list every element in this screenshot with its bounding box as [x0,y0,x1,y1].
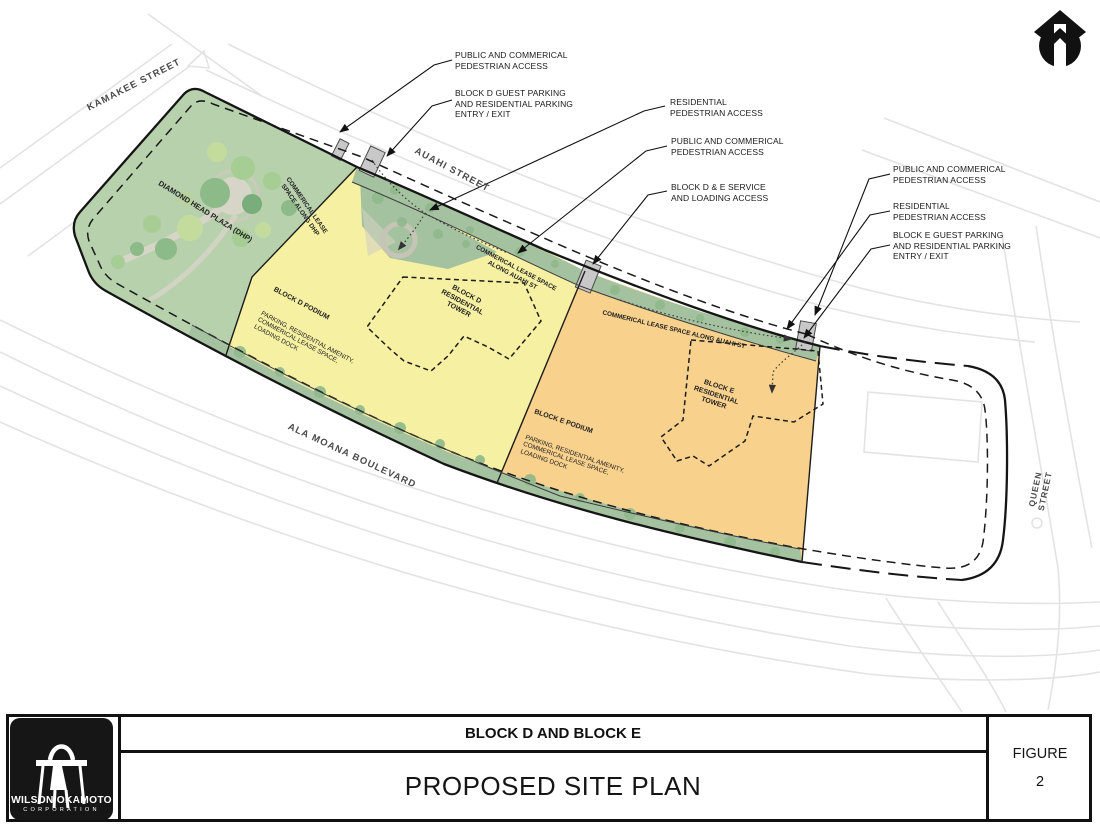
callout-residential-access-1: RESIDENTIAL PEDESTRIAN ACCESS [670,97,763,118]
callout-public-commercial-access-3: PUBLIC AND COMMERICAL PEDESTRIAN ACCESS [893,164,1006,185]
drawing-title: PROPOSED SITE PLAN [121,752,985,820]
logo-division-name: CORPORATION [10,807,113,813]
future-parcel-endcap [962,366,1007,580]
callout-service-loading-access: BLOCK D & E SERVICE AND LOADING ACCESS [671,182,768,203]
callout-public-commercial-access-2: PUBLIC AND COMMERICAL PEDESTRIAN ACCESS [671,136,784,157]
figure-label: FIGURE [1013,746,1068,762]
figure-number: 2 [1036,774,1044,790]
future-parcel-bottom-dash [802,562,962,580]
drawing-subtitle: BLOCK D AND BLOCK E [121,714,985,752]
callout-residential-access-2: RESIDENTIAL PEDESTRIAN ACCESS [893,201,986,222]
logo-company-name: WILSON OKAMOTO [10,795,113,806]
figure-cell: FIGURE 2 [988,714,1092,821]
wilson-okamoto-logo: WILSON OKAMOTO CORPORATION [10,718,113,820]
callout-block-d-guest-parking: BLOCK D GUEST PARKING AND RESIDENTIAL PA… [455,88,573,120]
north-arrow-icon [1034,10,1086,68]
callout-public-commercial-access-1: PUBLIC AND COMMERICAL PEDESTRIAN ACCESS [455,50,568,71]
proposed-site-plan-page: PUBLIC AND COMMERICAL PEDESTRIAN ACCESS … [0,0,1100,825]
callout-block-e-guest-parking: BLOCK E GUEST PARKING AND RESIDENTIAL PA… [893,230,1011,262]
